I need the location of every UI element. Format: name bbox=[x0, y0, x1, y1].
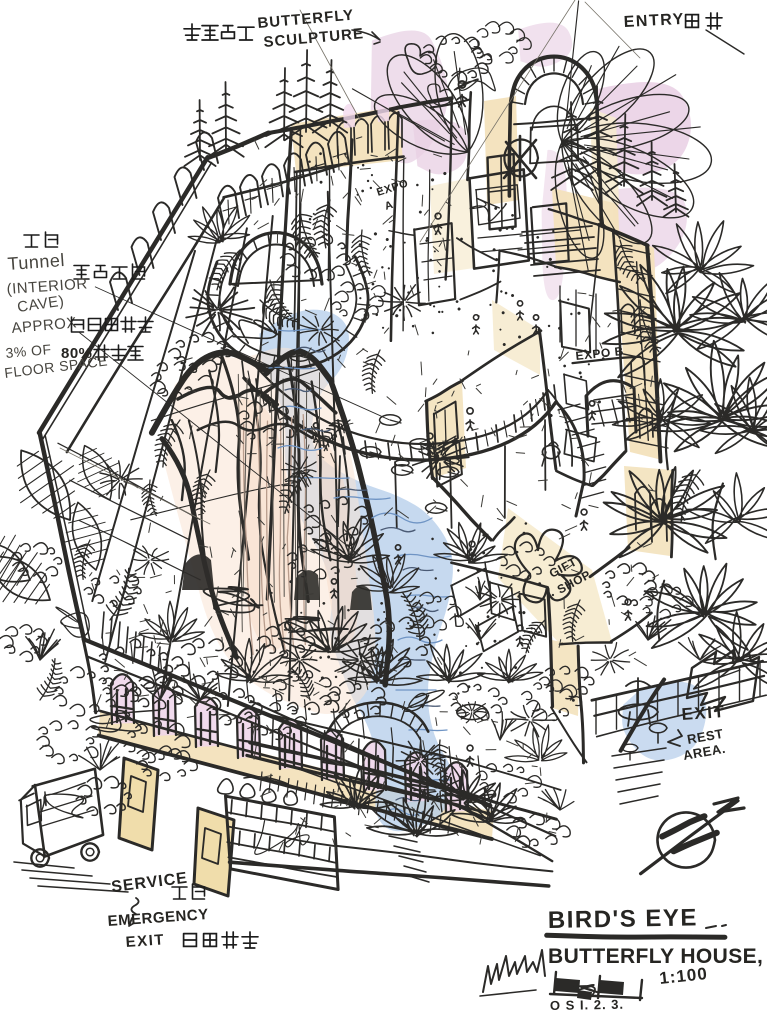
svg-text:Tunnel: Tunnel bbox=[7, 250, 66, 274]
svg-text:EXIT: EXIT bbox=[125, 931, 165, 951]
svg-text:BUTTERFLY HOUSE,: BUTTERFLY HOUSE, bbox=[548, 945, 763, 968]
svg-text:BIRD'S EYE: BIRD'S EYE bbox=[548, 904, 699, 934]
svg-text:ENTRY: ENTRY bbox=[623, 11, 685, 31]
svg-text:O S I. 2. 3.: O S I. 2. 3. bbox=[550, 997, 624, 1013]
svg-text:EXIT: EXIT bbox=[681, 702, 726, 724]
